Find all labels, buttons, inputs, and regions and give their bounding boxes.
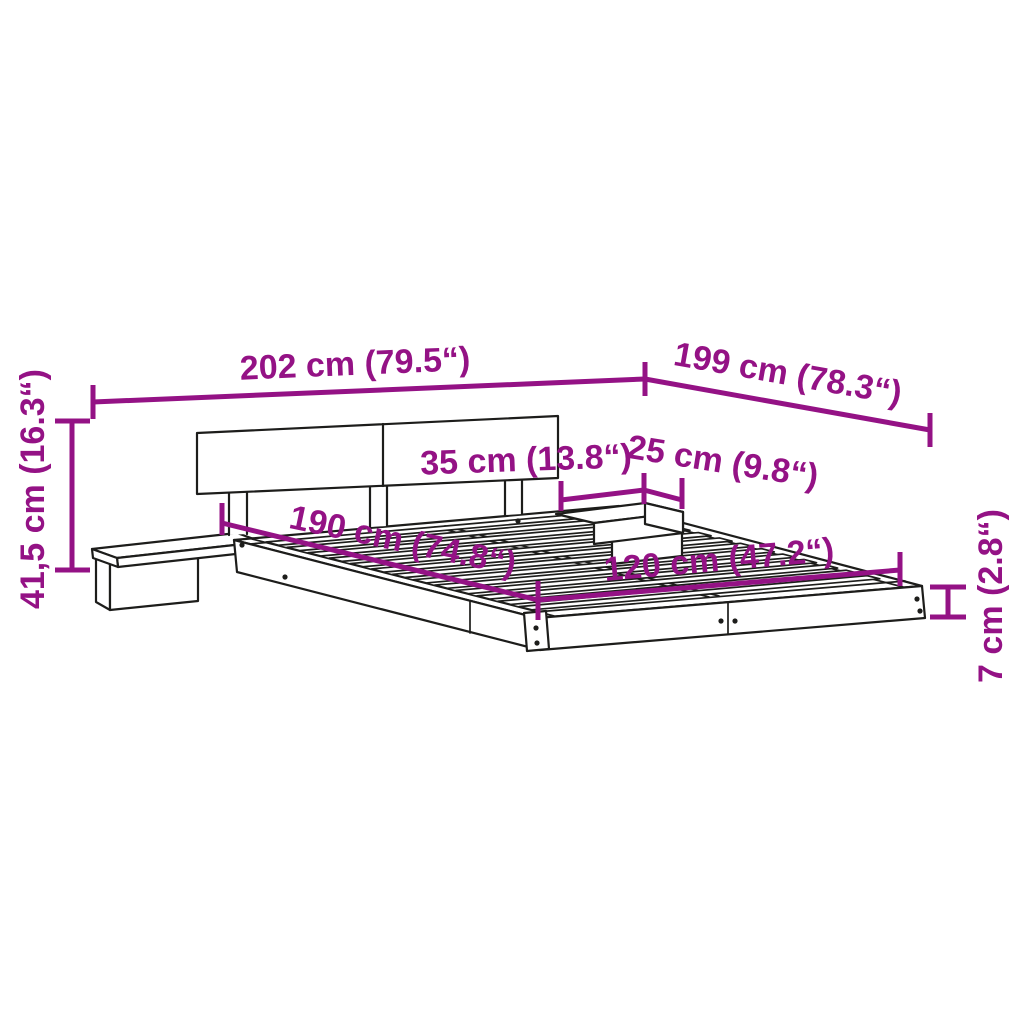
screw <box>917 608 922 613</box>
dim-overall-width: 202 cm (79.5“) <box>93 340 645 419</box>
dim-nightstand-depth: 25 cm (9.8“) <box>625 428 821 509</box>
dim-frame-height: 7 cm (2.8“) <box>930 509 1010 683</box>
dim-label-nightstand-width: 35 cm (13.8“) <box>420 437 633 482</box>
screw <box>732 618 737 623</box>
bed-frame-diagram: 202 cm (79.5“) 199 cm (78.3“) 41,5 cm (1… <box>0 0 1024 1024</box>
dim-line <box>644 490 682 500</box>
screw <box>515 518 520 523</box>
dim-label-overall-width: 202 cm (79.5“) <box>239 340 471 388</box>
product-dimension-diagram: 202 cm (79.5“) 199 cm (78.3“) 41,5 cm (1… <box>0 0 1024 1024</box>
screw <box>718 618 723 623</box>
dim-overall-depth: 199 cm (78.3“) <box>645 335 930 447</box>
dim-label-overall-height: 41,5 cm (16.3“) <box>14 369 52 609</box>
dim-label-frame-height: 7 cm (2.8“) <box>972 509 1010 683</box>
dim-label-nightstand-depth: 25 cm (9.8“) <box>625 428 821 496</box>
screw <box>239 542 244 547</box>
dim-overall-height: 41,5 cm (16.3“) <box>14 369 90 609</box>
screw <box>533 625 538 630</box>
screw <box>282 574 287 579</box>
screw <box>914 596 919 601</box>
screw <box>534 640 539 645</box>
leg-right <box>505 479 522 515</box>
dim-nightstand-width: 35 cm (13.8“) <box>420 437 644 511</box>
dim-line <box>561 490 644 500</box>
dim-label-overall-depth: 199 cm (78.3“) <box>671 335 905 412</box>
dim-line <box>93 379 645 402</box>
